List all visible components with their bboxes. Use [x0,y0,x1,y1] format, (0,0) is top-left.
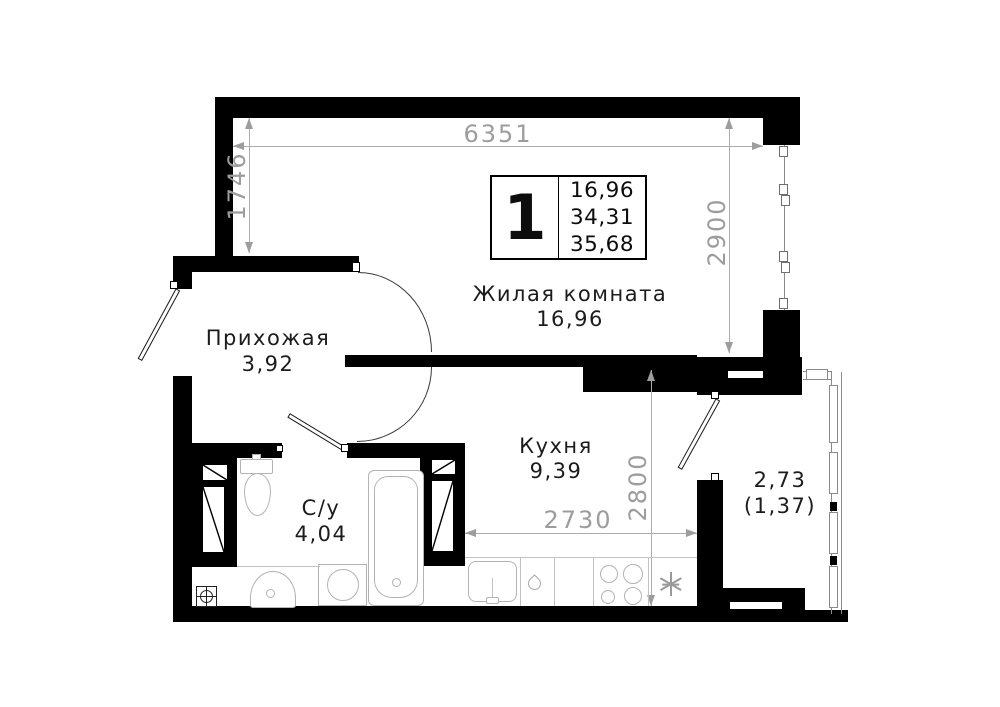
dim-line-kitchen-v [651,370,652,606]
stove-burner [600,565,618,583]
arrow-icon [725,342,733,353]
dim-left-height: 1746 [223,116,251,256]
kitchen-counter-divider [520,557,521,606]
wall-shaft-top-band [420,443,465,458]
balcony-glazing-outer-line [841,372,842,614]
entrance-door-hinge [170,281,178,289]
drain-crosshair-v [206,587,207,606]
kitchen-area: 9,39 [476,459,636,483]
balcony-glazing-frame [829,512,838,554]
stove-burner [624,587,642,605]
kitchen-counter-divider [648,557,649,606]
living-room-label: Жилая комната [440,282,700,306]
toilet-tank [240,459,273,474]
water-drop-icon [525,574,543,592]
balcony-glazing-lock [830,556,837,565]
balcony-area-reduced: (1,37) [700,494,860,518]
toilet-button [252,454,261,460]
balcony-glazing-frame [806,369,828,380]
rooms-count: 1 [492,177,559,258]
wall-right-upper-block [763,97,800,145]
fridge-snowflake-icon [658,572,682,596]
dim-line-top [233,146,763,147]
dim-kitchen-width: 2730 [498,506,658,534]
entrance-door-leaf [138,288,181,361]
arrow-icon [752,142,763,150]
wall-top [215,97,800,118]
wall-right-lower-block [763,310,800,383]
dim-top-width: 6351 [418,120,578,148]
balcony-area: 2,73 [700,468,860,492]
dim-living-height: 2900 [703,162,731,302]
living-door-jamb [352,262,360,272]
balcony-door-leaf [678,398,721,470]
living-window-mullion [779,146,788,157]
kitchen-sink-mixer [486,597,499,604]
balcony-glazing-frame [829,566,838,608]
floor-plan: 6351 1746 2900 2800 2730 1 16,96 34,31 3… [0,0,1000,707]
hallway-area: 3,92 [188,352,348,376]
arrow-icon [245,118,253,129]
kitchen-door-swing-arc [357,367,432,442]
living-window-mullion [781,195,790,206]
living-window-mullion [779,298,788,309]
living-window-mullion [779,184,788,195]
stove-burner [601,590,615,604]
snowflake-spoke [662,583,679,585]
bathtub-drain [392,578,401,587]
balcony-door-hinge [711,391,719,399]
arrow-icon [245,242,253,253]
areas-list: 16,96 34,31 35,68 [559,177,645,258]
dim-line-left [249,118,250,253]
bathroom-zone-line [237,566,320,567]
dim-line-kitchen-h [465,533,697,534]
bathroom-door-leaf [287,413,346,452]
living-door-swing-arc [358,272,432,352]
balcony-glazing-frame [829,385,838,443]
hallway-label: Прихожая [188,326,348,350]
stove-burner [623,564,643,584]
wall-left-lower [173,376,192,622]
arrow-icon [647,370,655,381]
washing-machine-drum [327,569,359,601]
kitchen-counter-edge [465,557,697,558]
wall-bathroom-top-right [347,443,420,458]
balcony-bottom-sill [730,602,782,609]
floor-drain-icon [196,586,217,607]
ventilation-shaft-right [420,458,465,566]
living-room-area: 16,96 [440,307,700,331]
living-area-value: 16,96 [570,177,634,204]
apartment-info-box: 1 16,96 34,31 35,68 [490,175,647,260]
arrow-icon [465,529,476,537]
bathroom-door-jamb [276,445,283,452]
wash-basin-drain [266,589,275,598]
ventilation-shaft-left [192,455,237,567]
wall-hallway-top [173,256,359,272]
living-window-mullion [779,251,788,262]
living-window-mullion [781,262,790,273]
kitchen-counter-divider [554,557,555,606]
kitchen-label: Кухня [476,434,636,458]
total-area-value: 35,68 [570,231,634,258]
dim-line-living [729,118,730,353]
area-without-balcony-value: 34,31 [570,204,634,231]
bathroom-door-hinge [341,444,349,452]
wall-bottom [173,606,697,622]
arrow-icon [725,118,733,129]
living-window-line [784,145,785,310]
kitchen-counter-divider [593,557,594,606]
arrow-icon [686,529,697,537]
wall-living-bottom-thick [583,355,697,392]
wall-living-bottom [345,355,583,367]
